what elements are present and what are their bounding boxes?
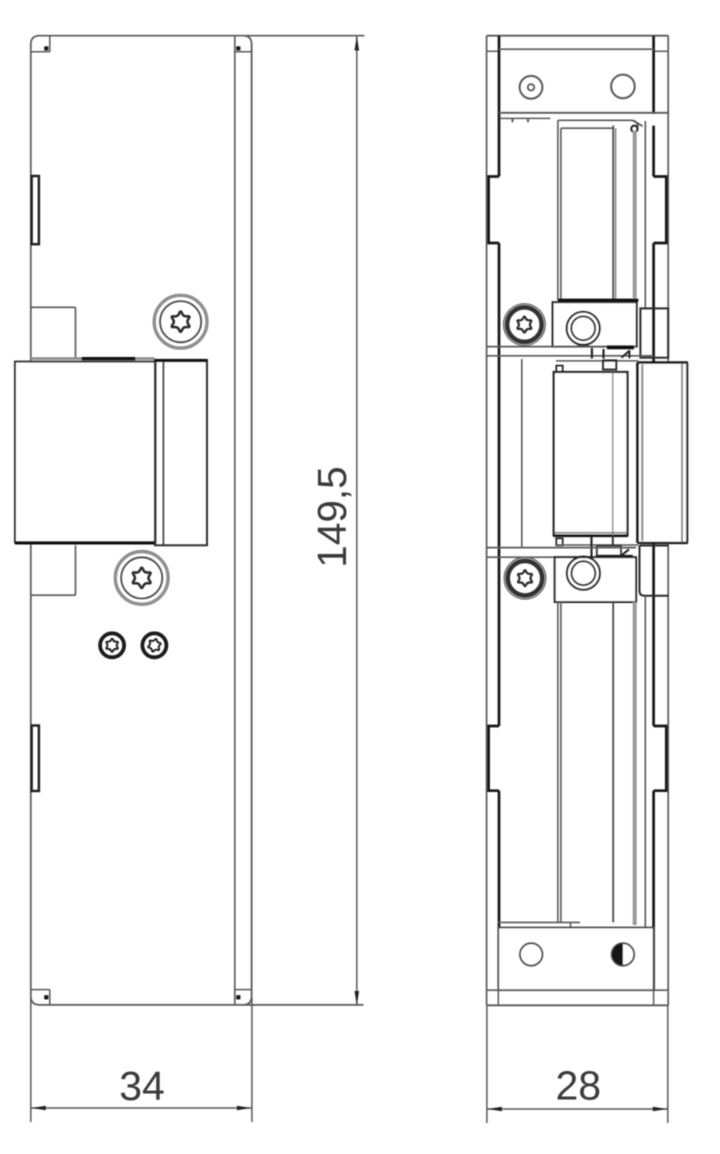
svg-text:34: 34 bbox=[119, 1063, 165, 1109]
svg-text:149,5: 149,5 bbox=[309, 466, 355, 567]
svg-text:28: 28 bbox=[555, 1063, 601, 1109]
